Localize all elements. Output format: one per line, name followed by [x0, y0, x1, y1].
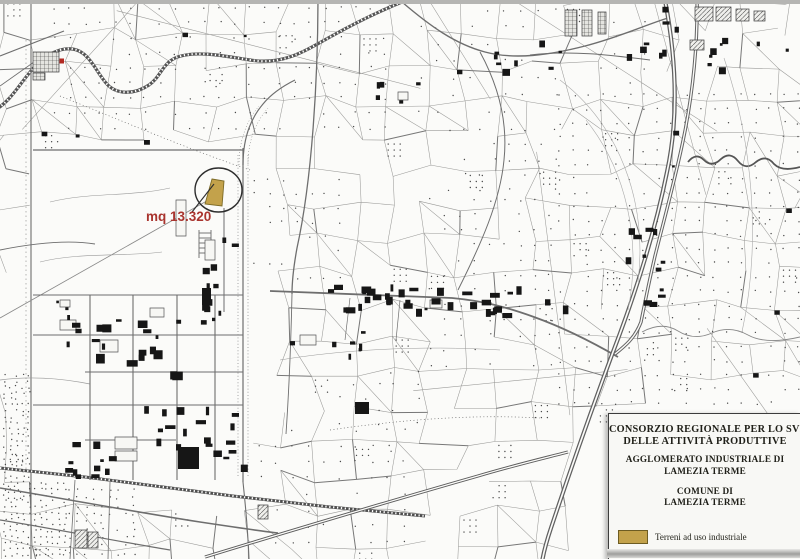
title-comune-line2: LAMEZIA TERME — [609, 497, 800, 507]
title-box: CONSORZIO REGIONALE PER LO SVILUPPO DELL… — [608, 413, 800, 559]
legend-swatch — [618, 530, 648, 544]
annotation-label: mq 13.320 — [146, 209, 211, 224]
title-agglomerato-line1: AGGLOMERATO INDUSTRIALE DI — [609, 454, 800, 464]
title-org-line1: CONSORZIO REGIONALE PER LO SVILUPPO — [609, 424, 800, 435]
legend-label: Terreni ad uso industriale — [655, 532, 747, 542]
legend-row: Terreni ad uso industriale — [618, 530, 747, 544]
title-agglomerato-line2: LAMEZIA TERME — [609, 466, 800, 476]
title-comune-line1: COMUNE DI — [609, 486, 800, 496]
cadastral-map-sheet: mq 13.320 CONSORZIO REGIONALE PER LO SVI… — [0, 0, 800, 559]
legend-swatch-rect — [619, 531, 648, 544]
scan-fold-shadow — [607, 549, 800, 558]
title-org-line2: DELLE ATTIVITÀ PRODUTTIVE — [609, 436, 800, 447]
scan-top-edge — [0, 0, 800, 4]
